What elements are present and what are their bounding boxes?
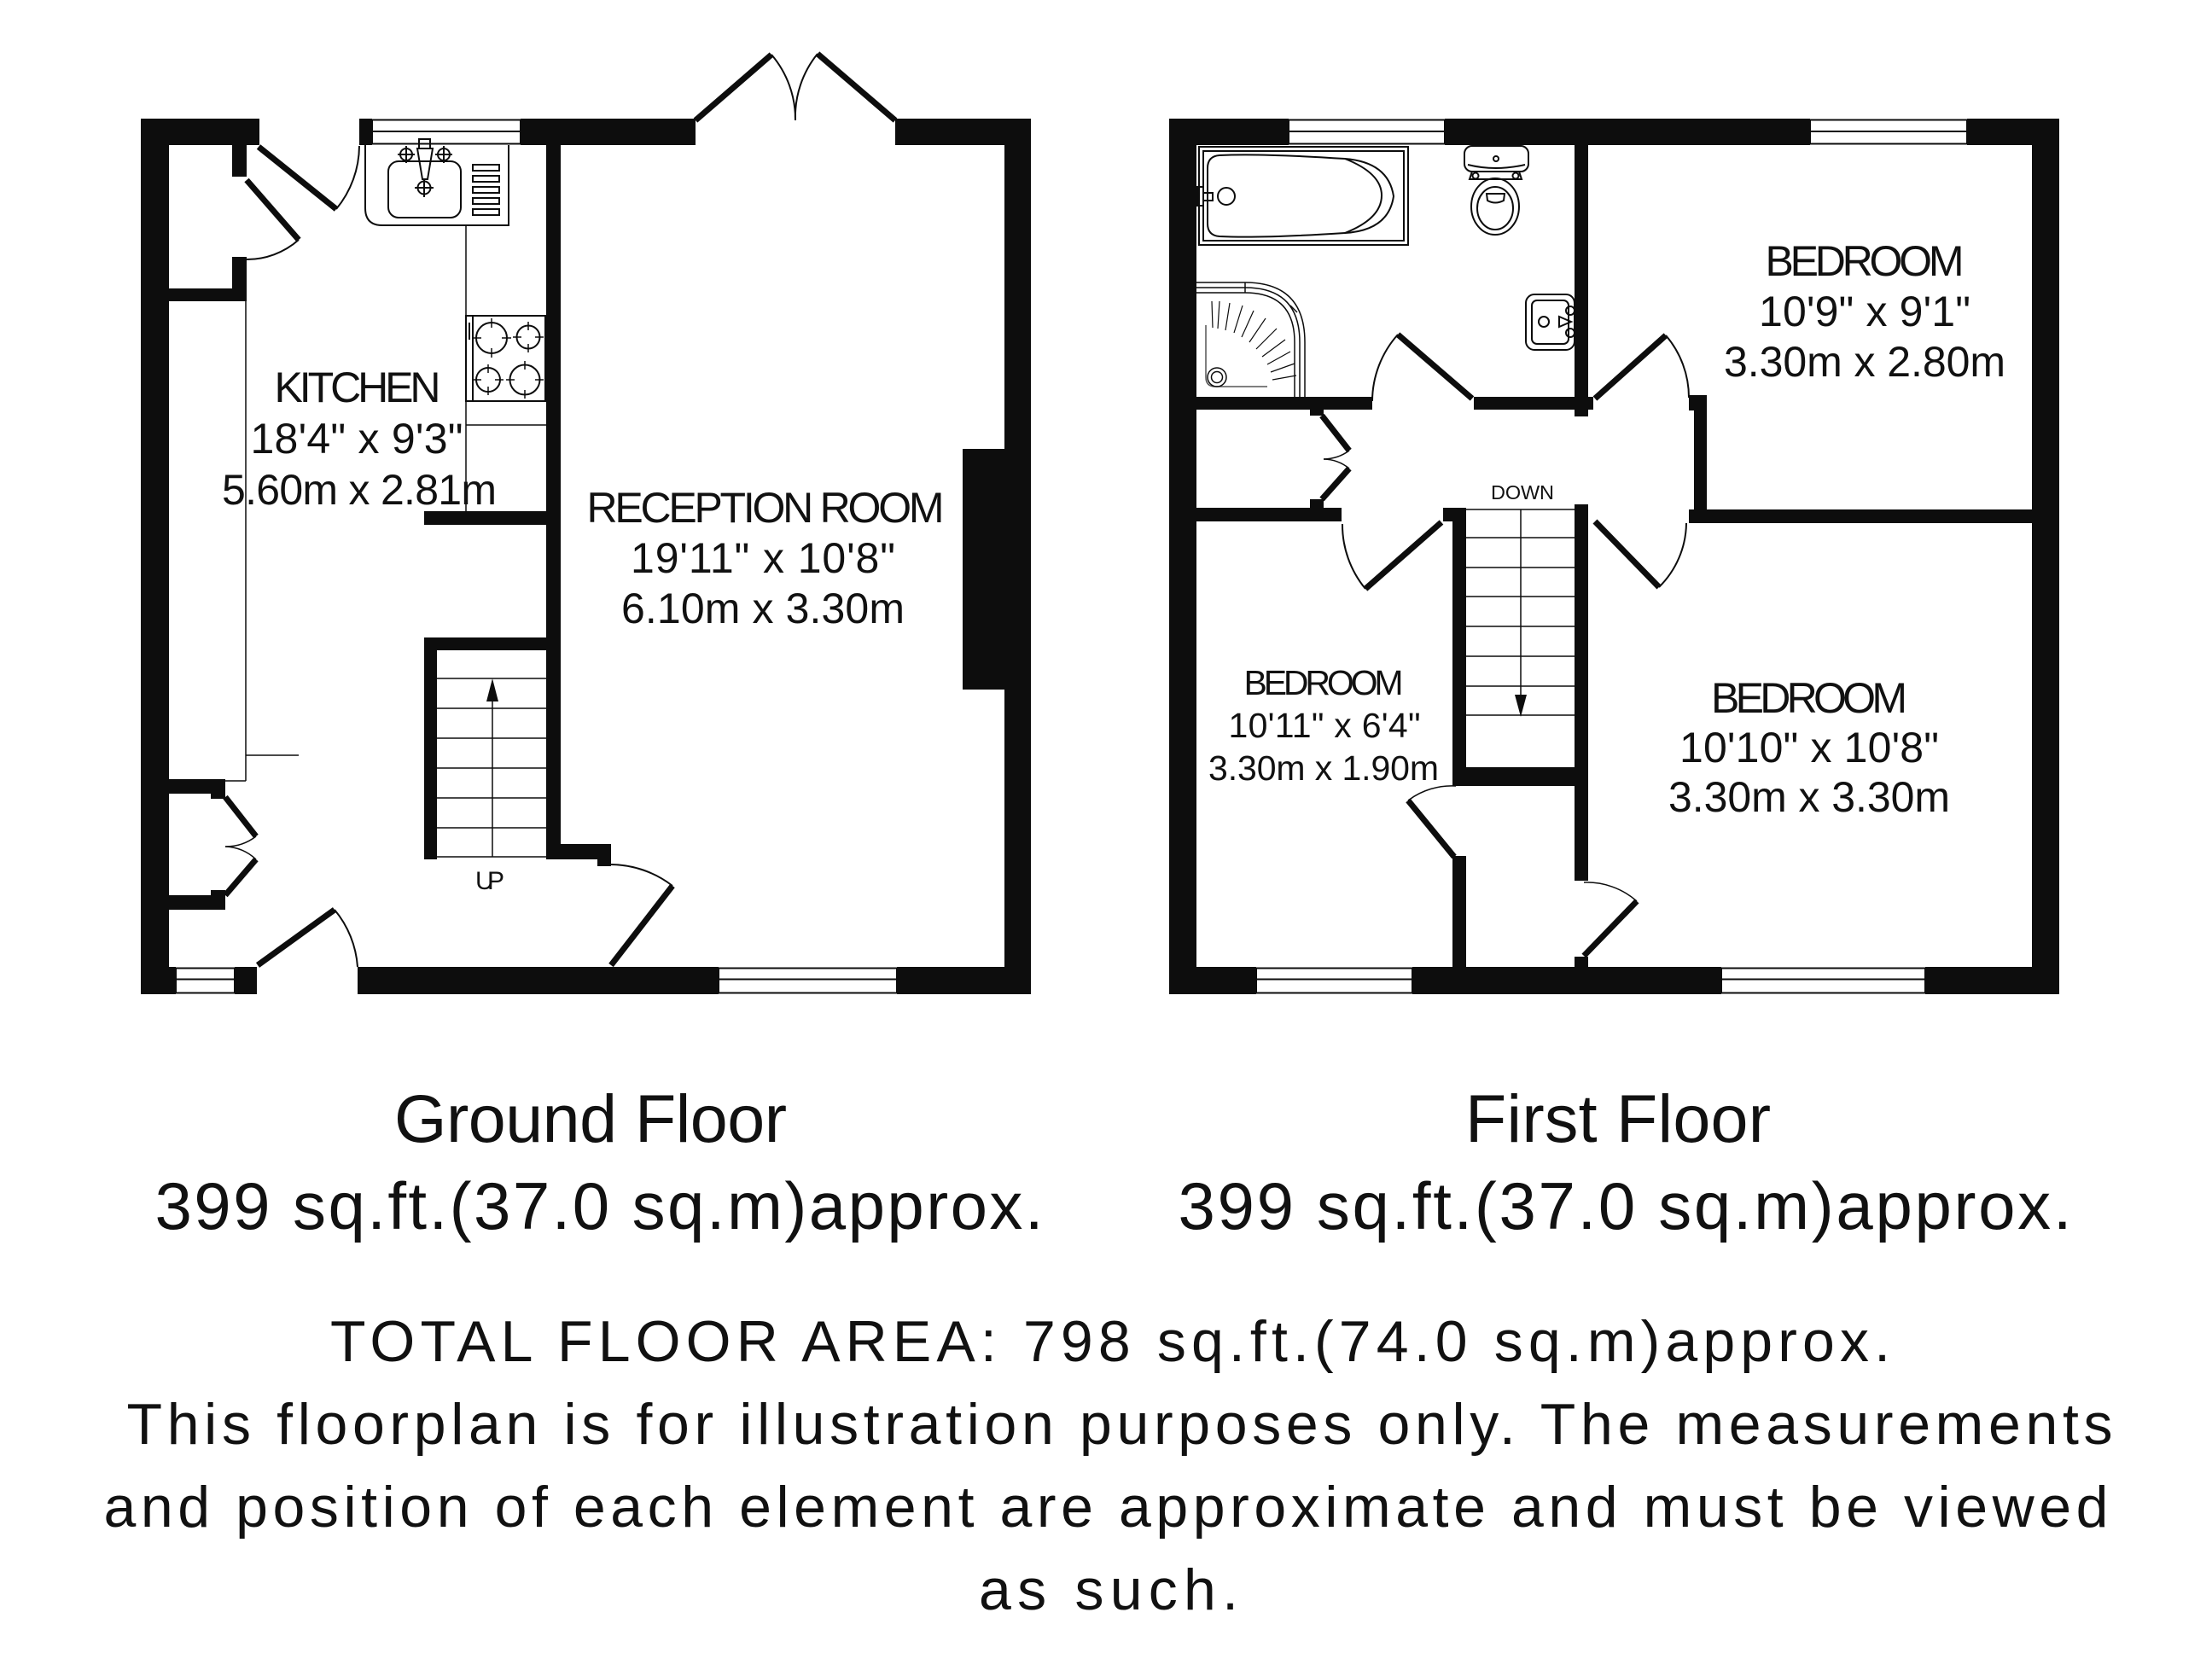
svg-text:6.10m x 3.30m: 6.10m x 3.30m [621, 585, 905, 632]
svg-text:Ground Floor: Ground Floor [394, 1080, 787, 1156]
svg-text:DOWN: DOWN [1491, 481, 1554, 504]
svg-text:18'4" x 9'3": 18'4" x 9'3" [251, 415, 463, 463]
svg-text:BEDROOM: BEDROOM [1766, 237, 1965, 285]
svg-text:399 sq.ft.(37.0 sq.m)approx.: 399 sq.ft.(37.0 sq.m)approx. [155, 1168, 1044, 1243]
svg-text:10'9" x 9'1": 10'9" x 9'1" [1759, 288, 1970, 335]
svg-text:10'10" x 10'8": 10'10" x 10'8" [1679, 724, 1939, 771]
svg-text:3.30m x 2.80m: 3.30m x 2.80m [1724, 338, 2005, 386]
svg-text:5.60m x 2.81m: 5.60m x 2.81m [222, 466, 497, 514]
svg-text:3.30m x 1.90m: 3.30m x 1.90m [1208, 748, 1439, 788]
svg-text:RECEPTION ROOM: RECEPTION ROOM [587, 484, 945, 532]
svg-text:TOTAL FLOOR AREA: 798 sq.ft.(7: TOTAL FLOOR AREA: 798 sq.ft.(74.0 sq.m)a… [330, 1309, 1890, 1374]
svg-text:3.30m x 3.30m: 3.30m x 3.30m [1668, 773, 1950, 821]
svg-text:BEDROOM: BEDROOM [1244, 663, 1404, 702]
svg-text:19'11" x 10'8": 19'11" x 10'8" [631, 534, 895, 582]
svg-text:UP: UP [475, 867, 504, 895]
svg-text:10'11" x 6'4": 10'11" x 6'4" [1229, 706, 1421, 745]
svg-text:BEDROOM: BEDROOM [1711, 674, 1907, 722]
svg-text:This floorplan is for illustra: This floorplan is for illustration purpo… [127, 1392, 2113, 1457]
svg-text:399 sq.ft.(37.0 sq.m)approx.: 399 sq.ft.(37.0 sq.m)approx. [1179, 1168, 2072, 1243]
svg-text:First Floor: First Floor [1465, 1080, 1771, 1156]
svg-text:KITCHEN: KITCHEN [275, 364, 441, 411]
